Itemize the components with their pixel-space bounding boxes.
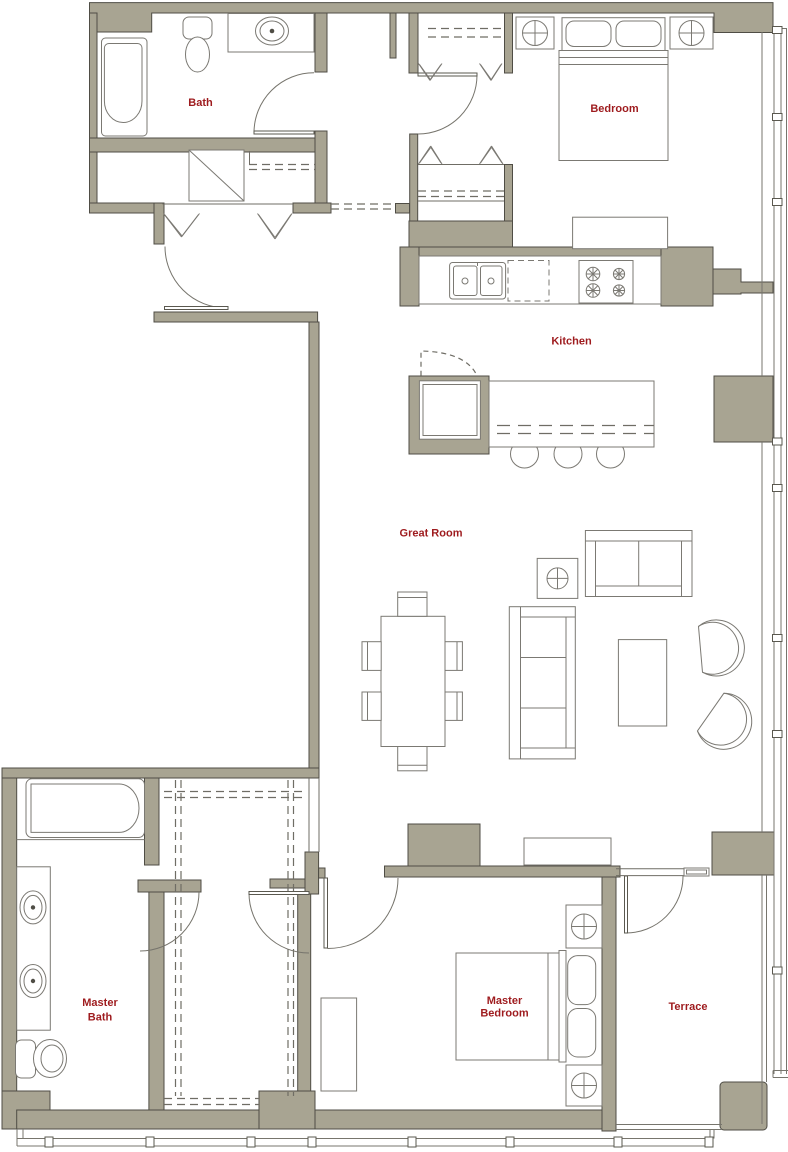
svg-text:Master: Master — [82, 997, 118, 1009]
svg-text:Master: Master — [487, 995, 523, 1007]
svg-text:Kitchen: Kitchen — [551, 335, 592, 347]
svg-text:Bedroom: Bedroom — [590, 103, 639, 115]
svg-text:Bath: Bath — [188, 97, 213, 109]
svg-text:Great Room: Great Room — [400, 528, 463, 540]
svg-text:Bedroom: Bedroom — [480, 1008, 529, 1020]
svg-text:Bath: Bath — [88, 1012, 113, 1024]
svg-text:Terrace: Terrace — [669, 1001, 708, 1013]
